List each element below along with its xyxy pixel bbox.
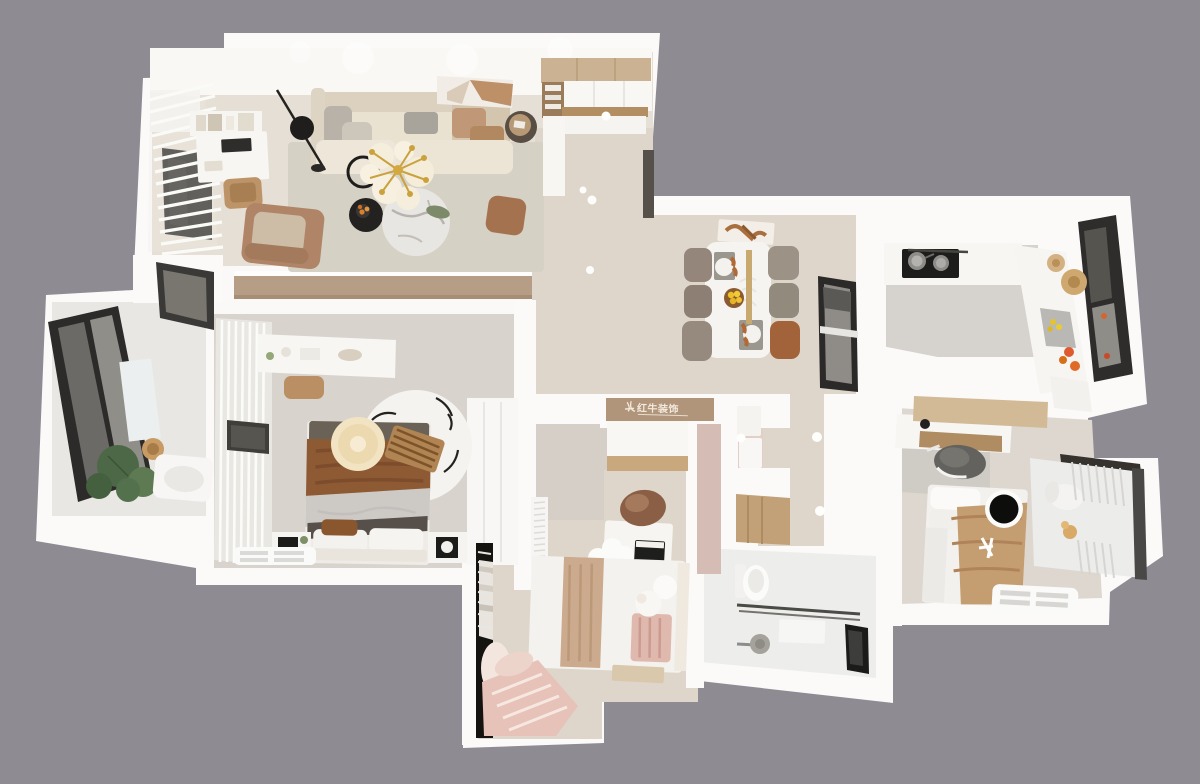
svg-text:红牛装饰: 红牛装饰 [637, 401, 679, 415]
